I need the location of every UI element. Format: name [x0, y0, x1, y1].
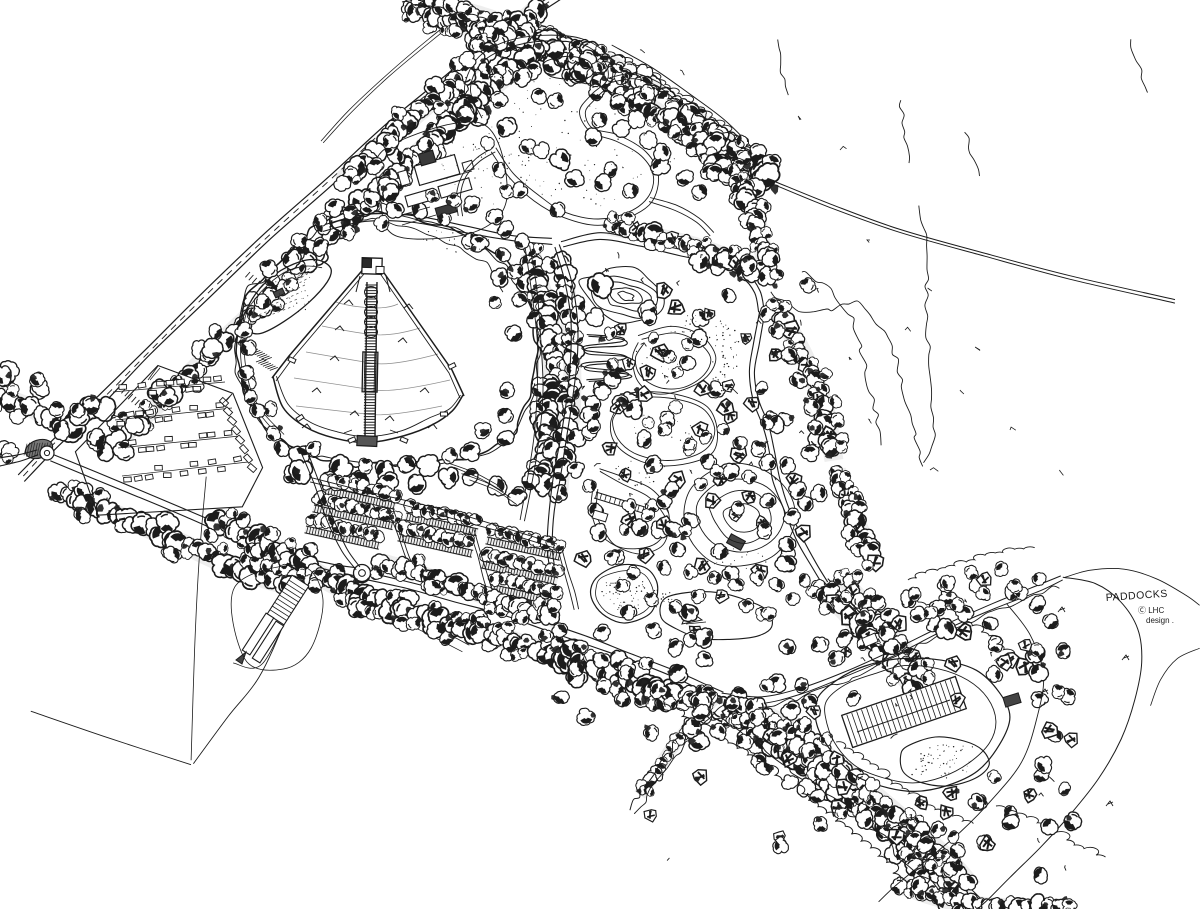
svg-text:design .: design .: [1146, 616, 1174, 625]
svg-text:Ⓒ LHC: Ⓒ LHC: [1138, 606, 1164, 615]
